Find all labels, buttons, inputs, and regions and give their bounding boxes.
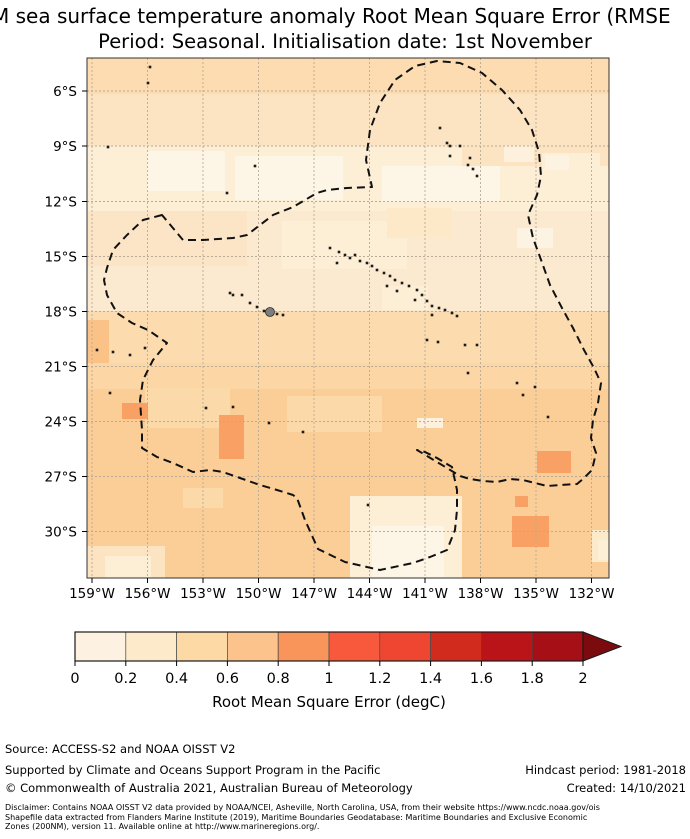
island-dot — [329, 247, 332, 250]
y-axis-tick-label: 24°S — [45, 414, 78, 430]
island-dot — [547, 416, 550, 419]
disclaimer-line-2: Shapefile data extracted from Flanders M… — [5, 813, 690, 823]
hindcast-period-text: Hindcast period: 1981-2018 — [525, 763, 686, 777]
island-dot — [459, 145, 462, 148]
island-dot — [469, 157, 472, 160]
island-dot — [256, 306, 259, 309]
island-dot — [366, 262, 369, 265]
island-dot — [147, 82, 150, 85]
island-dot — [449, 155, 452, 158]
island-dot — [302, 431, 305, 434]
rmse-patch — [387, 208, 452, 238]
rmse-patch — [382, 166, 500, 202]
island-dot — [205, 407, 208, 410]
colorbar-segment — [75, 632, 126, 661]
colorbar-over-arrow — [583, 632, 621, 661]
map-svg: 6°S9°S12°S15°S18°S21°S24°S27°S30°S159°W1… — [87, 58, 609, 578]
colorbar-segment — [481, 632, 532, 661]
island-dot — [472, 168, 475, 171]
x-axis-tick-label: 135°W — [513, 586, 559, 602]
island-dot — [534, 386, 537, 389]
colorbar-tick-label: 0.2 — [114, 671, 137, 687]
island-dot — [232, 294, 235, 297]
x-axis-tick-label: 132°W — [569, 586, 615, 602]
island-dot — [414, 299, 417, 302]
island-dot — [464, 344, 467, 347]
island-dot — [109, 392, 112, 395]
colorbar-tick-label: 1.8 — [521, 671, 544, 687]
island-dot — [229, 292, 232, 295]
island-dot — [446, 142, 449, 145]
rmse-patch — [87, 58, 609, 94]
island-dot — [408, 285, 411, 288]
disclaimer-line-3: Zones (200NM), version 11. Available onl… — [5, 822, 690, 832]
island-dot — [386, 285, 389, 288]
island-dot — [416, 289, 419, 292]
colorbar-tick-label: 1 — [324, 671, 333, 687]
island-dot — [476, 344, 479, 347]
rmse-patch — [504, 146, 534, 162]
x-axis-tick-label: 138°W — [458, 586, 504, 602]
colorbar-segment — [177, 632, 228, 661]
island-dot — [367, 504, 370, 507]
island-dot — [338, 251, 341, 254]
source-text: Source: ACCESS-S2 and NOAA OISST V2 — [5, 742, 235, 756]
island-dot — [371, 265, 374, 268]
x-axis-tick-label: 153°W — [180, 586, 226, 602]
colorbar-tick-label: 1.4 — [419, 671, 442, 687]
island-dot — [426, 339, 429, 342]
island-dot — [437, 341, 440, 344]
island-dot — [107, 146, 110, 149]
y-axis-tick-label: 18°S — [45, 304, 78, 320]
island-dot — [456, 315, 459, 318]
island-dot — [359, 260, 362, 263]
island-dot — [336, 262, 339, 265]
colorbar-segment — [532, 632, 583, 661]
island-dot — [349, 257, 352, 260]
island-dot — [276, 313, 279, 316]
figure-root: M sea surface temperature anomaly Root M… — [0, 0, 690, 839]
island-dot — [226, 192, 229, 195]
colorbar-tick-label: 1.6 — [470, 671, 493, 687]
colorbar-segment — [278, 632, 329, 661]
island-dot — [431, 314, 434, 317]
rmse-patch — [537, 451, 571, 473]
copyright-text: © Commonwealth of Australia 2021, Austra… — [5, 781, 413, 795]
colorbar-tick-label: 0.6 — [216, 671, 239, 687]
colorbar-tick-label: 0.4 — [165, 671, 188, 687]
island-dot — [516, 382, 519, 385]
tahiti-marker — [266, 308, 275, 317]
island-dot — [522, 394, 525, 397]
colorbar-segment — [126, 632, 177, 661]
rmse-patch — [382, 286, 428, 310]
island-dot — [476, 175, 479, 178]
y-axis-tick-label: 27°S — [45, 469, 78, 485]
y-axis-tick-label: 12°S — [45, 194, 78, 210]
colorbar-tick-label: 0.8 — [267, 671, 290, 687]
island-dot — [232, 406, 235, 409]
disclaimer-line-1: Disclaimer: Contains NOAA OISST V2 data … — [5, 803, 690, 813]
island-dot — [389, 275, 392, 278]
map-area: 6°S9°S12°S15°S18°S21°S24°S27°S30°S159°W1… — [87, 58, 609, 578]
rmse-patch — [598, 540, 609, 560]
chart-subtitle: Period: Seasonal. Initialisation date: 1… — [0, 30, 690, 53]
colorbar-segment — [227, 632, 278, 661]
island-dot — [401, 282, 404, 285]
x-axis-tick-label: 144°W — [347, 586, 393, 602]
colorbar-label: Root Mean Square Error (degC) — [212, 693, 446, 711]
island-dot — [129, 354, 132, 357]
y-axis-tick-label: 30°S — [45, 524, 78, 540]
colorbar-segment — [329, 632, 380, 661]
x-axis-tick-label: 159°W — [69, 586, 115, 602]
chart-title: M sea surface temperature anomaly Root M… — [0, 4, 671, 28]
rmse-patch — [122, 403, 148, 419]
island-dot — [426, 300, 429, 303]
rmse-patch — [105, 556, 151, 578]
island-dot — [438, 307, 441, 310]
rmse-patch — [515, 496, 528, 507]
island-dot — [396, 290, 399, 293]
rmse-patch — [87, 311, 609, 366]
island-dot — [451, 312, 454, 315]
y-axis-tick-label: 15°S — [45, 249, 78, 265]
x-axis-tick-label: 147°W — [291, 586, 337, 602]
island-dot — [467, 372, 470, 375]
island-dot — [439, 127, 442, 130]
island-dot — [383, 272, 386, 275]
island-dot — [394, 279, 397, 282]
colorbar-tick-label: 0 — [70, 671, 79, 687]
colorbar-segment — [380, 632, 431, 661]
island-dot — [444, 309, 447, 312]
colorbar-svg: 00.20.40.60.811.21.41.61.82Root Mean Squ… — [0, 630, 690, 715]
island-dot — [431, 305, 434, 308]
island-dot — [354, 254, 357, 257]
island-dot — [421, 294, 424, 297]
rmse-patch — [545, 155, 569, 170]
rmse-patch — [147, 151, 225, 191]
island-dot — [449, 145, 452, 148]
island-dot — [144, 347, 147, 350]
rmse-patch — [287, 396, 382, 432]
colorbar-tick-label: 2 — [578, 671, 587, 687]
island-dot — [241, 294, 244, 297]
island-dot — [112, 351, 115, 354]
y-axis-tick-label: 9°S — [53, 139, 77, 155]
island-dot — [249, 302, 252, 305]
colorbar-tick-label: 1.2 — [368, 671, 391, 687]
island-dot — [149, 66, 152, 69]
island-dot — [254, 165, 257, 168]
island-dot — [268, 422, 271, 425]
supported-by-text: Supported by Climate and Oceans Support … — [5, 763, 380, 777]
island-dot — [376, 269, 379, 272]
rmse-patch — [145, 388, 230, 428]
created-date-text: Created: 14/10/2021 — [567, 781, 686, 795]
y-axis-tick-label: 6°S — [53, 84, 77, 100]
island-dot — [96, 349, 99, 352]
colorbar-segment — [431, 632, 482, 661]
island-dot — [467, 164, 470, 167]
y-axis-tick-label: 21°S — [45, 359, 78, 375]
rmse-patch — [235, 156, 343, 200]
rmse-patch — [417, 418, 443, 428]
island-dot — [263, 310, 266, 313]
x-axis-tick-label: 150°W — [236, 586, 282, 602]
island-dot — [344, 254, 347, 257]
x-axis-tick-label: 156°W — [125, 586, 171, 602]
x-axis-tick-label: 141°W — [402, 586, 448, 602]
island-dot — [282, 314, 285, 317]
